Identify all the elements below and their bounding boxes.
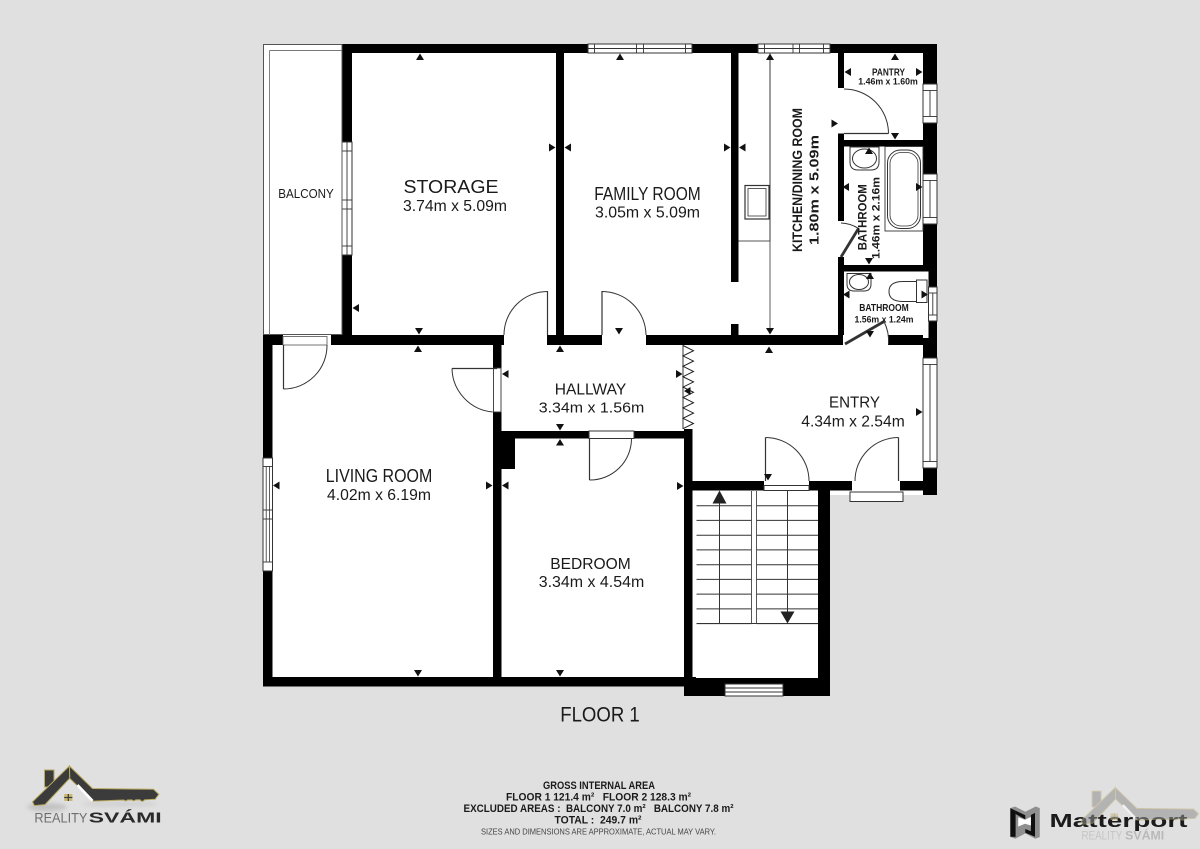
svg-text:STORAGE: STORAGE [404, 177, 499, 197]
svg-text:FAMILY ROOM: FAMILY ROOM [594, 184, 701, 204]
svg-text:REALITY: REALITY [1081, 830, 1122, 843]
svg-text:3.74m x 5.09m: 3.74m x 5.09m [403, 198, 507, 215]
svg-text:ENTRY: ENTRY [829, 395, 880, 412]
svg-text:BATHROOM: BATHROOM [859, 303, 909, 314]
svg-text:4.34m x 2.54m: 4.34m x 2.54m [801, 414, 905, 431]
svg-text:3.34m x 1.56m: 3.34m x 1.56m [539, 400, 645, 417]
svg-text:BALCONY: BALCONY [278, 187, 334, 201]
svg-text:BEDROOM: BEDROOM [550, 556, 631, 573]
svg-text:1.56m x 1.24m: 1.56m x 1.24m [855, 315, 914, 326]
svg-text:FLOOR 1 121.4 m² FLOOR 2 128: FLOOR 1 121.4 m² FLOOR 2 128.3 m² [506, 792, 691, 804]
svg-text:3.05m x 5.09m: 3.05m x 5.09m [595, 205, 700, 222]
svg-text:GROSS INTERNAL AREA: GROSS INTERNAL AREA [543, 780, 655, 792]
svg-text:KITCHEN/DINING ROOM: KITCHEN/DINING ROOM [790, 108, 805, 252]
svg-text:4.02m x 6.19m: 4.02m x 6.19m [327, 487, 431, 504]
svg-text:1.46m x 1.60m: 1.46m x 1.60m [858, 77, 918, 88]
svg-text:SVÁMI: SVÁMI [1125, 830, 1164, 843]
svg-text:BATHROOM: BATHROOM [856, 184, 870, 250]
svg-text:LIVING ROOM: LIVING ROOM [326, 466, 433, 486]
svg-text:REALITY: REALITY [34, 811, 87, 826]
svg-text:HALLWAY: HALLWAY [555, 382, 627, 399]
svg-text:SIZES AND DIMENSIONS ARE APPRO: SIZES AND DIMENSIONS ARE APPROXIMATE, AC… [481, 827, 716, 837]
svg-text:1.46m x 2.16m: 1.46m x 2.16m [871, 177, 883, 259]
svg-text:EXCLUDED AREAS : BALCONY 7.0: EXCLUDED AREAS : BALCONY 7.0 m² BALCONY … [464, 803, 734, 815]
svg-text:FLOOR 1: FLOOR 1 [560, 703, 640, 727]
svg-text:TOTAL : 249.7 m²: TOTAL : 249.7 m² [555, 815, 642, 827]
svg-text:1.80m x 5.09m: 1.80m x 5.09m [808, 135, 822, 245]
svg-text:SVÁMI: SVÁMI [89, 810, 162, 827]
svg-text:3.34m x 4.54m: 3.34m x 4.54m [539, 574, 645, 591]
